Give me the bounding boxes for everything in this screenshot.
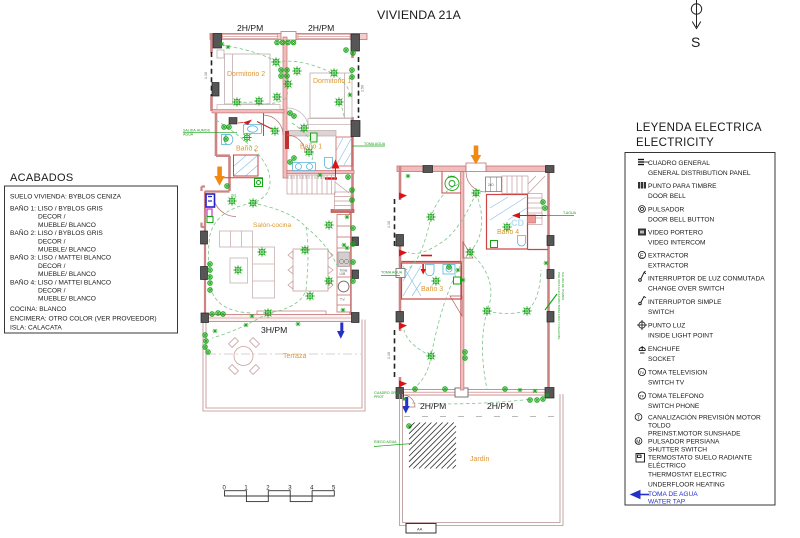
svg-text:ELECTRICITY: ELECTRICITY [636,137,714,149]
svg-text:2H/PM: 2H/PM [308,23,334,33]
svg-text:UNDERFLOOR HEATING: UNDERFLOOR HEATING [648,482,725,489]
svg-text:2H/PM: 2H/PM [237,23,263,33]
svg-text:VIVIENDA 21A: VIVIENDA 21A [377,8,461,22]
svg-text:1.10: 1.10 [387,352,391,359]
svg-text:SWITCH TV: SWITCH TV [648,380,685,387]
svg-text:TOMA AGUA: TOMA AGUA [381,271,403,275]
svg-text:WATER TAP: WATER TAP [648,499,686,506]
svg-text:THERMOSTAT ELECTRIC: THERMOSTAT ELECTRIC [648,472,727,479]
svg-text:EXTRACTOR: EXTRACTOR [648,263,689,270]
svg-text:2xL: 2xL [231,194,237,198]
svg-text:Jardín: Jardín [470,456,490,463]
svg-text:TOLDO: TOLDO [648,423,671,430]
svg-text:INSIDE LIGHT POINT: INSIDE LIGHT POINT [648,333,713,340]
svg-text:TOMA DE AGUA: TOMA DE AGUA [648,491,698,498]
svg-text:PULSADOR PERSIANA: PULSADOR PERSIANA [648,439,720,446]
svg-text:PREINST.MOTOR SUNSHADE: PREINST.MOTOR SUNSHADE [648,431,741,438]
svg-text:VIDEO INTERCOM: VIDEO INTERCOM [648,240,706,247]
svg-text:CD: CD [511,218,524,228]
svg-text:1.10: 1.10 [204,72,208,79]
svg-text:MUEBLE/ BLANCO: MUEBLE/ BLANCO [38,222,96,229]
svg-text:BAÑO 3: LISO / MATTEI BLANCO: BAÑO 3: LISO / MATTEI BLANCO [10,253,111,262]
svg-text:DOOR BELL: DOOR BELL [648,193,686,200]
svg-text:VIDEO PORTERO: VIDEO PORTERO [648,230,703,237]
svg-text:PRE INST.ALICACION TOMA FRIA Y: PRE INST.ALICACION TOMA FRIA Y CALIENTE [557,272,561,340]
svg-text:Salón-cocina: Salón-cocina [253,222,291,229]
svg-text:DOOR BELL BUTTON: DOOR BELL BUTTON [648,217,715,224]
svg-text:2H/PM: 2H/PM [420,401,446,411]
svg-text:SOCKET: SOCKET [648,356,675,363]
svg-text:SUELO VIVIENDA: BYBLOS CENIZA: SUELO VIVIENDA: BYBLOS CENIZA [10,194,122,201]
svg-text:SWITCH PHONE: SWITCH PHONE [648,403,700,410]
svg-text:1.10: 1.10 [387,221,391,228]
svg-text:TOMA TELEFONO: TOMA TELEFONO [648,393,704,400]
svg-text:INTERRUPTOR DE LUZ CONMUTADA: INTERRUPTOR DE LUZ CONMUTADA [648,276,765,283]
svg-text:DECOR /: DECOR / [38,288,66,295]
svg-text:DECOR /: DECOR / [38,238,66,245]
svg-text:RIEGO AGUA: RIEGO AGUA [374,440,397,444]
svg-text:CANALIZACIÓN PREVISIÓN MOTOR: CANALIZACIÓN PREVISIÓN MOTOR [648,413,761,422]
svg-text:EXTRACTOR: EXTRACTOR [648,253,689,260]
svg-text:LVB: LVB [340,272,346,276]
svg-text:AGUA: AGUA [183,133,194,137]
svg-text:ENCHUFE: ENCHUFE [648,346,680,353]
svg-text:PULSADOR: PULSADOR [648,207,685,214]
svg-text:COCINA: BLANCO: COCINA: BLANCO [10,306,66,313]
svg-text:Baño 2: Baño 2 [236,146,258,153]
svg-text:T: T [637,416,640,422]
svg-text:Dormitorio 2: Dormitorio 2 [227,71,265,78]
svg-text:SALIDA DE HUMOS: SALIDA DE HUMOS [561,272,565,300]
svg-text:E: E [640,254,644,260]
svg-text:PUNTO PARA TIMBRE: PUNTO PARA TIMBRE [648,183,717,190]
svg-text:CHANGE OVER SWITCH: CHANGE OVER SWITCH [648,286,725,293]
svg-text:PUNTO LUZ: PUNTO LUZ [648,323,685,330]
svg-text:3H/PM: 3H/PM [261,325,287,335]
svg-text:PROT: PROT [374,395,385,399]
svg-text:DECOR /: DECOR / [38,214,66,221]
svg-text:DECOR /: DECOR / [38,263,66,270]
svg-text:AA: AA [417,527,423,532]
svg-text:INTERRUPTOR SIMPLE: INTERRUPTOR SIMPLE [648,299,722,306]
svg-text:TOMA TELEVISION: TOMA TELEVISION [648,370,707,377]
svg-text:2xD: 2xD [488,183,494,187]
svg-text:M: M [636,440,640,446]
svg-text:ELÉCTRICO: ELÉCTRICO [648,461,686,470]
svg-text:ISLA: CALACATA: ISLA: CALACATA [10,325,62,332]
svg-text:SHUTTER SWITCH: SHUTTER SWITCH [648,447,707,454]
svg-text:MUEBLE/ BLANCO: MUEBLE/ BLANCO [38,271,96,278]
svg-text:SWITCH: SWITCH [648,309,674,316]
svg-text:T.AGUA: T.AGUA [563,211,577,215]
svg-text:ENCIMERA: OTRO COLOR (VER PROV: ENCIMERA: OTRO COLOR (VER PROVEEDOR) [10,315,157,322]
svg-text:ACABADOS: ACABADOS [10,172,74,184]
svg-text:BAÑO 4: LISO / MATTEI BLANCO: BAÑO 4: LISO / MATTEI BLANCO [10,277,111,286]
svg-text:LEYENDA ELECTRICA: LEYENDA ELECTRICA [636,122,762,134]
svg-text:TOMA AGUA: TOMA AGUA [364,142,386,146]
svg-text:MUEBLE/ BLANCO: MUEBLE/ BLANCO [38,247,96,254]
svg-text:AGA: AGA [448,175,456,179]
svg-text:Baño 3: Baño 3 [421,286,443,293]
svg-text:MUEBLE/ BLANCO: MUEBLE/ BLANCO [38,296,96,303]
svg-text:1.50: 1.50 [361,85,365,92]
svg-text:S: S [691,34,700,50]
svg-text:T.V.: T.V. [340,298,345,302]
svg-text:BAÑO 1: LISO / BYBLOS GRIS: BAÑO 1: LISO / BYBLOS GRIS [10,204,103,213]
svg-text:Terraza: Terraza [283,353,306,360]
svg-text:TF: TF [639,394,644,399]
svg-text:TV: TV [639,370,644,375]
svg-text:Baño 4: Baño 4 [497,229,519,236]
svg-text:GENERAL DISTRIBUTION PANEL: GENERAL DISTRIBUTION PANEL [648,170,751,177]
svg-text:CUADRO GENERAL: CUADRO GENERAL [648,160,710,167]
svg-text:TERMOSTATO SUELO RADIANTE: TERMOSTATO SUELO RADIANTE [648,455,753,462]
svg-text:BAÑO 2: LISO / BYBLOS GRIS: BAÑO 2: LISO / BYBLOS GRIS [10,228,103,237]
